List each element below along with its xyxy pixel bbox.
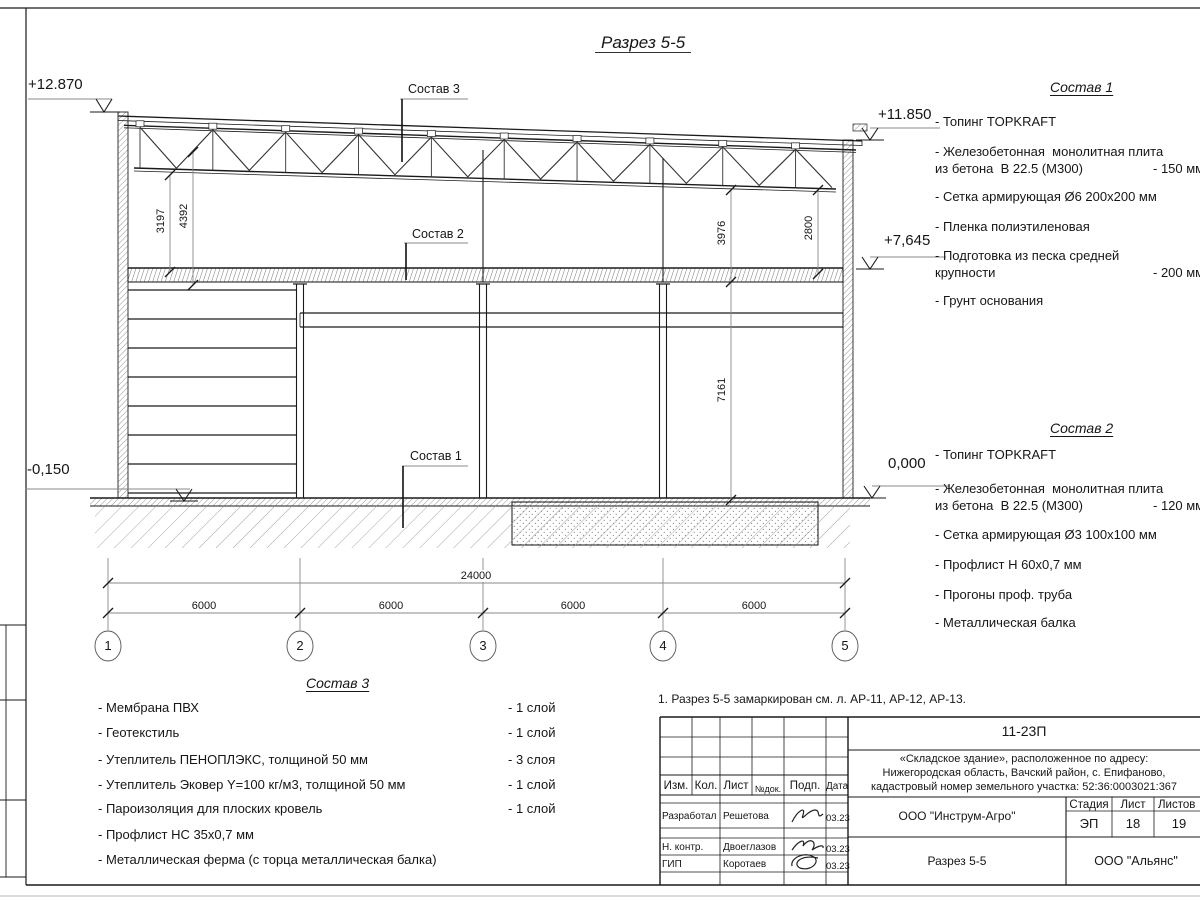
dim-2800: 2800	[803, 200, 815, 256]
row-date: 03.23	[826, 860, 848, 873]
list-item: - Топинг TOPKRAFT	[935, 113, 1056, 130]
list-item: - Железобетонная монолитная плитаиз бето…	[935, 480, 1163, 514]
col-ndok: №док.	[752, 783, 784, 796]
dim-bay-4: 6000	[740, 600, 768, 612]
dim-3197: 3197	[155, 193, 167, 249]
axis-bubble-1: 1	[95, 638, 121, 653]
list-item: - Топинг TOPKRAFT	[935, 446, 1056, 463]
row-date: 03.23	[826, 812, 848, 825]
axis-bubble-4: 4	[650, 638, 676, 653]
building-section	[90, 112, 870, 548]
list-item-value: - 1 слой	[508, 776, 556, 793]
list-item-value: - 1 слой	[508, 800, 556, 817]
sheet-value: 18	[1112, 817, 1154, 830]
project-address-3: кадастровый номер земельного участка: 52…	[848, 781, 1200, 794]
col-podp: Подп.	[784, 780, 826, 793]
col-izm: Изм.	[660, 780, 692, 793]
axis-bubble-5: 5	[832, 638, 858, 653]
row-role: ГИП	[662, 858, 682, 871]
dimension-lines	[108, 152, 845, 630]
design-company: ООО "Инструм-Агро"	[848, 810, 1066, 823]
list-item: - Сетка армирующая Ø6 200x200 мм	[935, 188, 1157, 205]
list-item: - Металлическая балка	[935, 614, 1076, 631]
truss-bottom-chord	[134, 168, 836, 189]
list-item: - Грунт основания	[935, 292, 1043, 309]
project-address-2: Нижегородская область, Вачский район, с.…	[848, 767, 1200, 780]
list-item-value: - 3 слоя	[508, 751, 555, 768]
ground-hatch	[95, 506, 850, 548]
list-item: - Прогоны проф. труба	[935, 586, 1072, 603]
sostav1-title: Состав 1	[1050, 79, 1113, 96]
elevation-top-right: +11.850	[878, 106, 932, 123]
contractor: ООО "Альянс"	[1066, 855, 1200, 868]
dim-7161: 7161	[716, 362, 728, 418]
row-role: Н. контр.	[662, 841, 703, 854]
sostav3-title: Состав 3	[306, 675, 369, 692]
sheets-label: Листов	[1158, 799, 1195, 812]
row-role: Разработал	[662, 810, 716, 823]
list-item: - Профлист НС 35x0,7 мм	[98, 826, 254, 843]
list-item-value: - 1 слой	[508, 724, 556, 741]
dim-bay-1: 6000	[190, 600, 218, 612]
list-item: - Сетка армирующая Ø3 100x100 мм	[935, 526, 1157, 543]
right-wall	[843, 140, 853, 498]
row-date: 03.23	[826, 843, 848, 856]
list-item: - Пароизоляция для плоских кровель	[98, 800, 322, 817]
list-item-value: - 1 слой	[508, 699, 556, 716]
list-item: - Железобетонная монолитная плитаиз бето…	[935, 143, 1163, 177]
axis-bubble-3: 3	[470, 638, 496, 653]
col-data: Дата	[826, 780, 848, 793]
sheet-title: Разрез 5-5	[595, 34, 691, 53]
racking-lines	[128, 290, 296, 493]
sheet-label: Лист	[1112, 799, 1154, 812]
mezzanine-slab	[128, 268, 843, 282]
col-kol: Кол.	[692, 780, 720, 793]
drawing-sheet: Разрез 5-5 +12.870 -0,150 +11.850 +7,645…	[0, 0, 1200, 900]
elevation-top-left: +12.870	[28, 76, 83, 93]
list-item: - Профлист Н 60x0,7 мм	[935, 556, 1082, 573]
sheets-value: 19	[1154, 817, 1200, 830]
dim-4392: 4392	[178, 188, 190, 244]
row-name: Коротаев	[723, 858, 766, 871]
truss-web	[136, 121, 832, 188]
stage-label: Стадия	[1066, 799, 1112, 812]
list-item: - Геотекстиль	[98, 724, 179, 741]
row-name: Решетова	[723, 810, 769, 823]
dim-3976: 3976	[716, 205, 728, 261]
project-address-1: «Складское здание», расположенное по адр…	[848, 753, 1200, 766]
row-name: Двоеглазов	[723, 841, 776, 854]
callout-sostav2: Состав 2	[412, 227, 464, 241]
doc-number: 11-23П	[848, 725, 1200, 738]
list-item-value: - 120 мм	[1153, 497, 1200, 514]
dim-total: 24000	[459, 570, 494, 582]
left-wall	[118, 112, 128, 498]
elevation-mid-right: +7,645	[884, 232, 930, 249]
elevation-bottom-left: -0,150	[27, 461, 70, 478]
list-item: - Утеплитель Эковер Y=100 кг/м3, толщино…	[98, 776, 405, 793]
stage-value: ЭП	[1066, 817, 1112, 830]
col-list: Лист	[720, 780, 752, 793]
elevation-marks	[25, 99, 950, 501]
callout-sostav3: Состав 3	[408, 82, 460, 96]
elevation-zero-right: 0,000	[888, 455, 926, 472]
list-item-value: - 150 мм	[1153, 160, 1200, 177]
dim-bay-2: 6000	[377, 600, 405, 612]
list-item: - Мембрана ПВХ	[98, 699, 199, 716]
list-item: - Пленка полиэтиленовая	[935, 218, 1090, 235]
axis-bubble-2: 2	[287, 638, 313, 653]
list-item-value: - 200 мм	[1153, 264, 1200, 281]
list-item: - Подготовка из песка среднейкрупности	[935, 247, 1119, 281]
list-item: - Металлическая ферма (с торца металличе…	[98, 851, 437, 868]
sheet-note: 1. Разрез 5-5 замаркирован см. л. АР-11,…	[658, 691, 966, 708]
dim-bay-3: 6000	[559, 600, 587, 612]
callout-sostav1: Состав 1	[410, 449, 462, 463]
sostav2-title: Состав 2	[1050, 420, 1113, 437]
columns	[293, 284, 670, 498]
list-item: - Утеплитель ПЕНОПЛЭКС, толщиной 50 мм	[98, 751, 368, 768]
right-roof-flashing	[853, 124, 867, 131]
drawing-name: Разрез 5-5	[848, 855, 1066, 868]
signatures	[792, 810, 823, 869]
